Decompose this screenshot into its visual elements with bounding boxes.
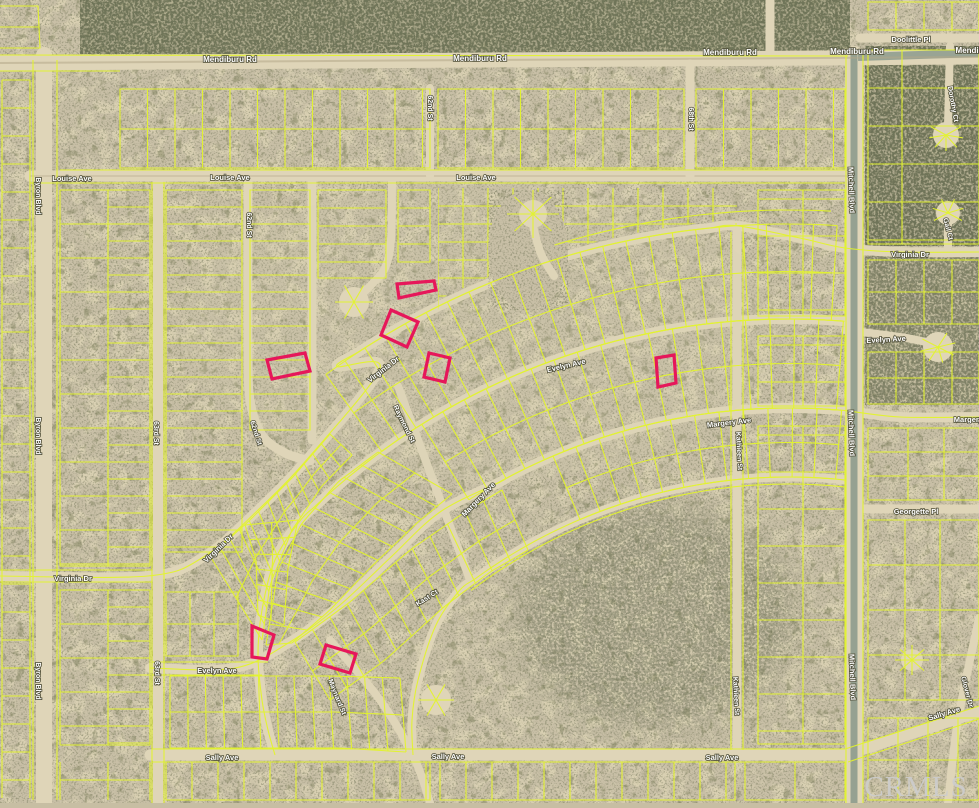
svg-text:Mendiburu Rd: Mendiburu Rd (703, 48, 757, 57)
svg-text:Doolittle Pl: Doolittle Pl (891, 35, 930, 44)
svg-text:Byron Blvd: Byron Blvd (34, 177, 41, 214)
svg-text:Virginia Dr: Virginia Dr (54, 574, 92, 583)
svg-text:68th St: 68th St (687, 107, 694, 131)
svg-text:Sally Ave: Sally Ave (206, 753, 239, 762)
svg-text:63rd St: 63rd St (153, 661, 160, 685)
svg-text:Mendiburu Rd: Mendiburu Rd (453, 54, 507, 63)
svg-text:Mitchell Blvd: Mitchell Blvd (847, 654, 858, 701)
svg-text:Byron Blvd: Byron Blvd (34, 662, 41, 699)
svg-text:Mendiburu Rd: Mendiburu Rd (830, 47, 884, 56)
svg-text:Sally Ave: Sally Ave (432, 752, 465, 761)
svg-text:62nd St: 62nd St (426, 95, 433, 121)
svg-text:Louise Ave: Louise Ave (210, 173, 249, 182)
svg-text:Virginia Dr: Virginia Dr (891, 250, 929, 259)
svg-text:63rd St: 63rd St (152, 421, 159, 445)
svg-text:Georgette Pl: Georgette Pl (894, 507, 939, 516)
svg-text:Mitchell Blvd: Mitchell Blvd (846, 410, 857, 457)
svg-text:Louise Ave: Louise Ave (52, 174, 91, 183)
svg-text:Mendibu: Mendibu (956, 46, 979, 55)
svg-text:Byron Blvd: Byron Blvd (34, 417, 41, 454)
svg-text:CRMLS: CRMLS (864, 771, 967, 803)
svg-text:Mendiburu Rd: Mendiburu Rd (203, 55, 257, 64)
svg-text:Margery A: Margery A (954, 415, 979, 424)
svg-text:62nd St: 62nd St (245, 212, 252, 238)
svg-text:Louise Ave: Louise Ave (456, 173, 495, 182)
svg-text:Sally Ave: Sally Ave (706, 753, 739, 762)
svg-text:Evelyn Ave: Evelyn Ave (197, 666, 236, 675)
svg-text:Mitchell Blvd: Mitchell Blvd (846, 167, 857, 214)
